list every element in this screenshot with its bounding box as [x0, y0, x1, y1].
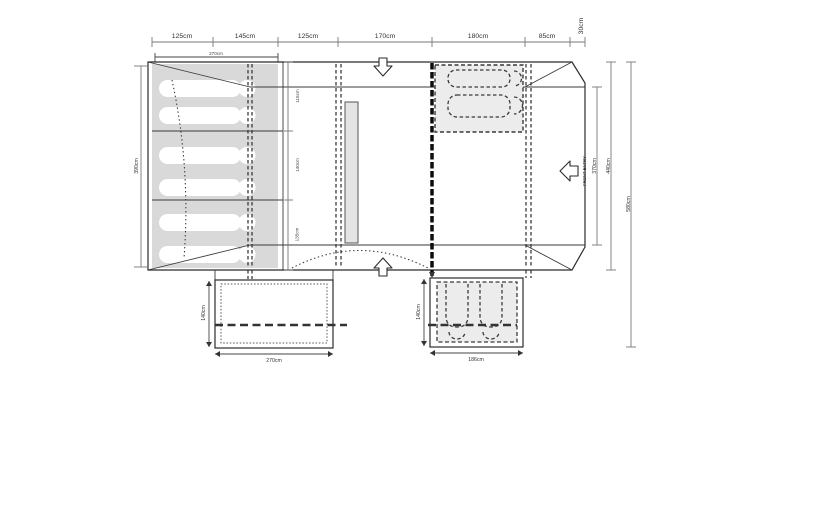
- section-label-3: 135cm: [295, 227, 300, 241]
- tent-floorplan-diagram: 125cm 145cm 125cm 170cm 180cm 85cm 30cm …: [0, 0, 817, 529]
- right-annex-width-label: 186cm: [468, 357, 484, 363]
- total-depth-label: 580cm: [626, 196, 632, 212]
- top-dim-label-3: 125cm: [298, 33, 319, 40]
- section-label-2: 140cm: [295, 158, 300, 172]
- left-annex-depth-label: 140cm: [201, 305, 207, 321]
- left-annex-width-label: 270cm: [266, 358, 282, 364]
- kitchen-unit: [345, 102, 358, 243]
- canvas-background: [0, 0, 817, 529]
- section-label-1: 115cm: [295, 89, 300, 103]
- top-dim-label-1: 125cm: [172, 33, 193, 40]
- body-depth-label: 440cm: [606, 158, 612, 174]
- bedroom-width-label: 270cm: [209, 51, 223, 56]
- top-dim-label-4: 170cm: [375, 33, 396, 40]
- top-dim-label-2: 145cm: [235, 33, 256, 40]
- top-dim-label-6: 85cm: [539, 33, 556, 40]
- right-annex-depth-label: 140cm: [416, 304, 422, 320]
- top-dim-label-5: 180cm: [468, 33, 489, 40]
- top-dim-label-7: 30cm: [578, 17, 585, 34]
- bedroom-height-label: 390cm: [134, 158, 140, 174]
- entry-opening-label: 370cm: [592, 158, 598, 174]
- front-entry-label: FRONT ENTRY: [582, 156, 587, 186]
